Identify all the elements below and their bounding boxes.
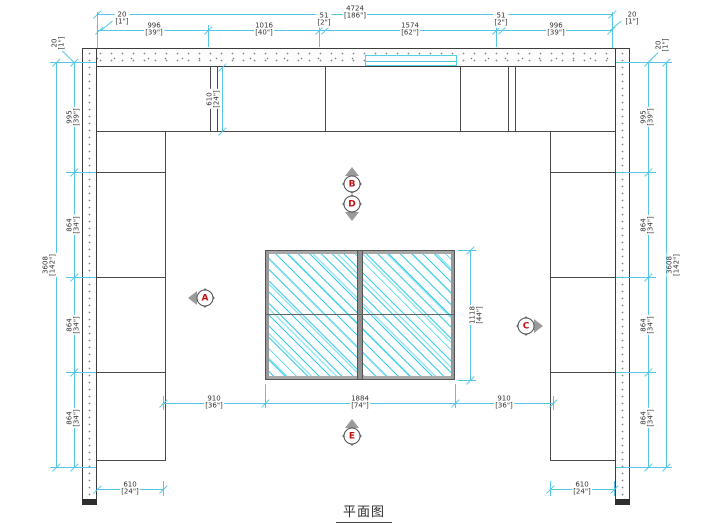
right-column-shelf — [550, 372, 615, 373]
left-column-shelf — [97, 172, 165, 173]
extension-line — [66, 172, 96, 173]
floor-plan-canvas: 4724[186"] 20[1"] 996[39"] 1016[40"] 51[… — [0, 0, 705, 530]
dim-label: 1884[74"] — [350, 396, 370, 411]
dim-label: 610[24"] — [120, 482, 140, 497]
dim-label: 51[2"] — [493, 13, 508, 28]
right-column-shelf — [550, 172, 615, 173]
dim-label: 910[36"] — [204, 396, 224, 411]
cabinet-front-line — [97, 131, 615, 132]
dim-label: 995[39"] — [641, 107, 656, 127]
top-cabinet-divider — [508, 66, 509, 131]
left-column-bottom — [97, 460, 165, 461]
dim-label: 864[34"] — [641, 315, 656, 335]
glass-panel — [365, 55, 457, 66]
dim-line — [222, 67, 223, 131]
marker-letter: E — [344, 428, 361, 445]
dim-label: 1118[44"] — [470, 305, 485, 325]
dim-label: 20[1"] — [52, 35, 67, 50]
extension-line — [66, 372, 96, 373]
dim-label: 3608[142"] — [667, 253, 682, 277]
left-column-shelf — [97, 372, 165, 373]
wall-end-cap-left — [82, 499, 97, 505]
dim-label: 864[34"] — [641, 215, 656, 235]
dim-label: 51[2"] — [316, 13, 331, 28]
table-center-line — [266, 314, 454, 315]
dim-label: 610[24"] — [207, 89, 222, 109]
table-edge-left — [266, 251, 269, 379]
niche-left-edge — [325, 66, 326, 131]
dim-label: 864[34"] — [67, 315, 82, 335]
outer-wall-top — [82, 48, 630, 67]
marker-letter: C — [518, 318, 535, 335]
dim-label: 20[1"] — [114, 12, 129, 27]
marker-d: D — [334, 186, 370, 222]
extension-line — [66, 277, 96, 278]
dim-line — [97, 30, 612, 31]
dim-label: 864[34"] — [641, 408, 656, 428]
wall-end-cap-right — [615, 499, 630, 505]
leader-line — [62, 50, 75, 63]
dim-label: 864[34"] — [67, 408, 82, 428]
dim-label: 864[34"] — [67, 215, 82, 235]
table-edge-right — [451, 251, 454, 379]
arrow-down-icon — [345, 212, 359, 221]
dim-label: 20[1"] — [656, 37, 671, 52]
dim-label: 1574[62"] — [400, 23, 420, 38]
dim-label: 910[36"] — [494, 396, 514, 411]
dim-label: 996[39"] — [144, 23, 164, 38]
dim-label: 1016[40"] — [254, 23, 274, 38]
table-center-bar — [357, 251, 363, 379]
left-column-inner-face — [165, 131, 166, 461]
drawing-title: 平面图 — [336, 501, 392, 523]
niche-right-edge — [460, 66, 461, 131]
dim-label: 610[24"] — [572, 482, 592, 497]
table — [265, 250, 455, 380]
dim-label: 3608[142"] — [43, 253, 58, 277]
dim-label: 995[39"] — [67, 107, 82, 127]
left-column-shelf — [97, 277, 165, 278]
dim-label: 4724[186"] — [343, 6, 367, 21]
dim-label: 996[39"] — [546, 23, 566, 38]
top-cabinet-divider — [515, 66, 516, 131]
glass-panel-midline — [366, 61, 456, 62]
extension-line — [458, 380, 476, 381]
right-column-inner-face — [550, 131, 551, 461]
dim-label: 20[1"] — [624, 12, 639, 27]
marker-letter: D — [344, 196, 361, 213]
arrow-right-icon — [534, 319, 543, 333]
extension-line — [458, 250, 476, 251]
marker-e: E — [334, 418, 370, 454]
marker-letter: A — [197, 290, 214, 307]
right-column-shelf — [550, 277, 615, 278]
right-column-bottom — [550, 460, 615, 461]
marker-c: C — [508, 308, 544, 344]
marker-a: A — [187, 280, 223, 316]
